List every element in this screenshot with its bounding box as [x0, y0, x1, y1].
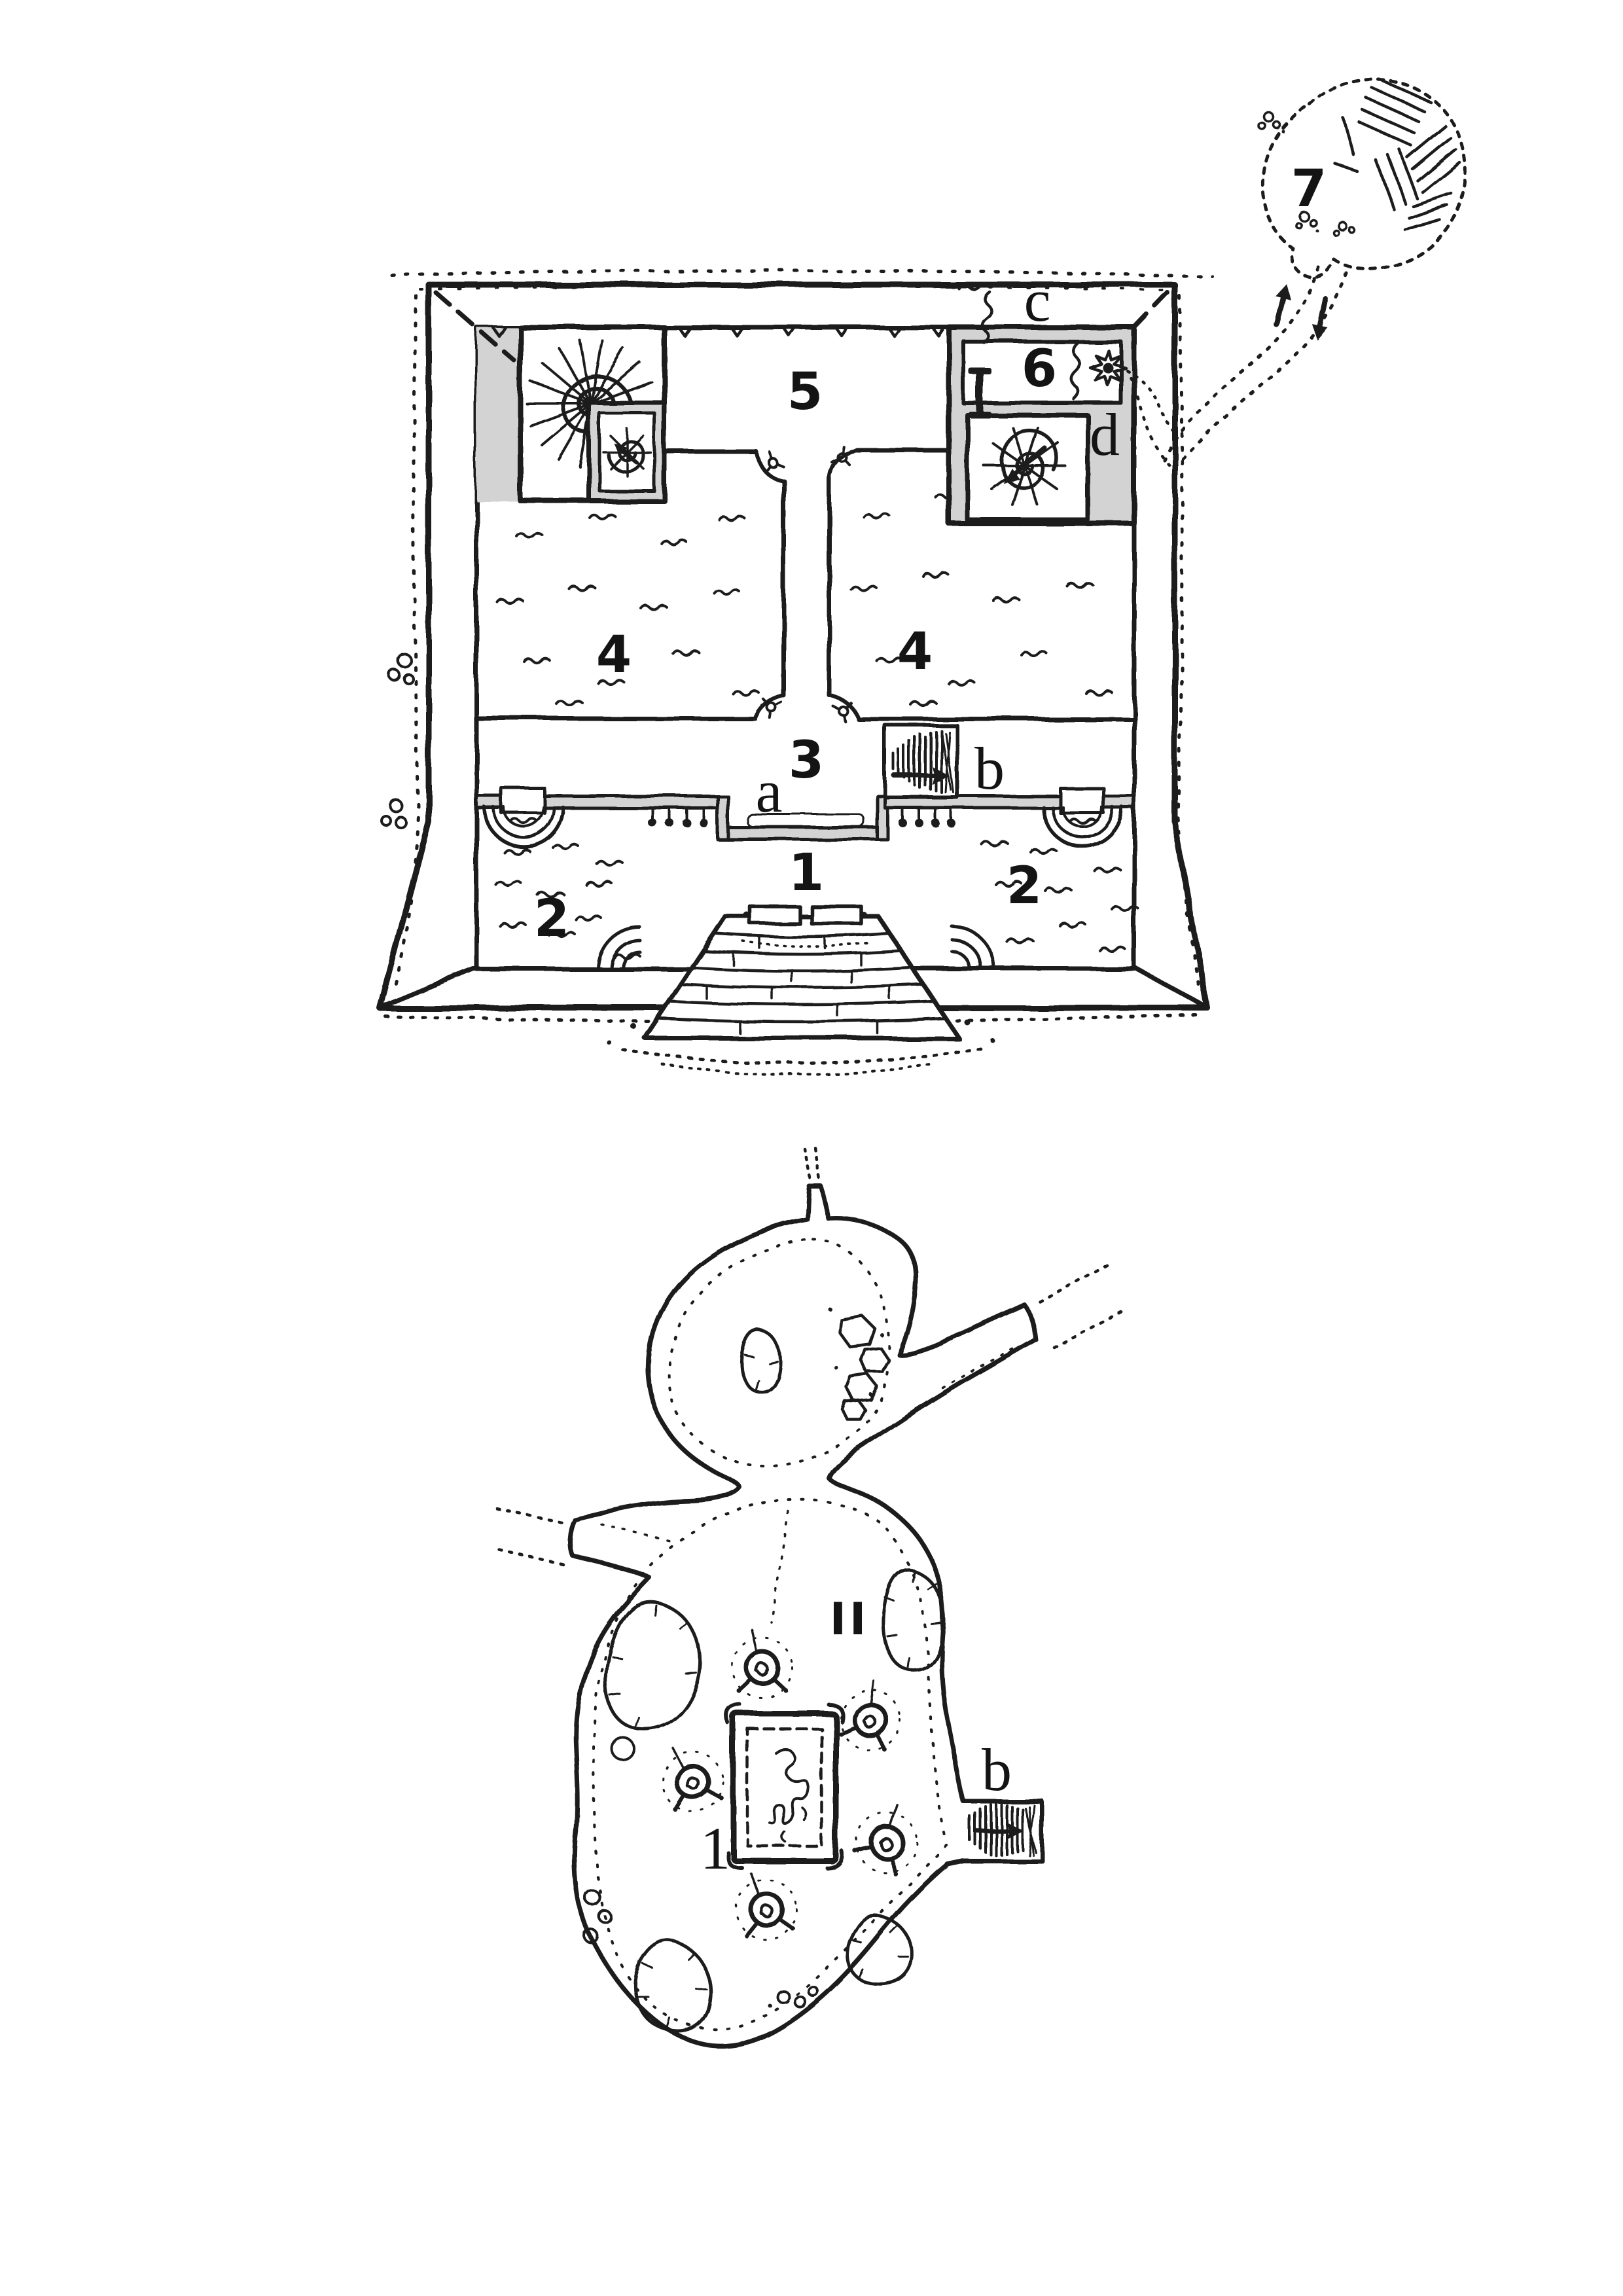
door-leaf — [750, 906, 800, 924]
corner-pool-right — [952, 927, 994, 969]
room-4-right-label: 4 — [897, 622, 933, 681]
spiral-staircase-northwest — [520, 327, 664, 501]
door-leaf — [811, 906, 861, 924]
ceremonial-dais — [726, 1704, 842, 1868]
room-5-label: 5 — [787, 363, 823, 422]
feature-b-label: b — [974, 735, 1005, 802]
level-ii-label: II — [830, 1594, 870, 1645]
temple-labels: 1 2 2 3 4 4 5 6 7 a b c d — [534, 160, 1327, 948]
fountain-spout — [501, 788, 544, 813]
cave-feature-b-label: b — [982, 1736, 1012, 1803]
stairs-b — [885, 725, 957, 797]
deadfall-hatching — [1335, 80, 1459, 230]
brazier-icon — [658, 1738, 724, 1813]
cavern-level-map — [492, 1148, 1126, 2046]
cave-7-label: 7 — [1291, 160, 1327, 219]
room-2-right-label: 2 — [1007, 857, 1042, 916]
cave-feature-1-label: 1 — [700, 1815, 730, 1882]
edge-stipple — [594, 1240, 1018, 2029]
cave-7 — [1258, 79, 1465, 278]
room-2-left-label: 2 — [534, 889, 569, 948]
room-3-label: 3 — [789, 731, 824, 790]
thick-wall-corner — [476, 327, 520, 501]
rock-ticks — [610, 1355, 941, 2028]
boulder-cluster-upper — [828, 1307, 889, 1419]
boulders-west — [382, 653, 412, 828]
dungeon-map-page: 1 2 2 3 4 4 5 6 7 a b c d — [0, 0, 1623, 2296]
fountain-spout — [1060, 788, 1103, 813]
brazier-icon — [838, 1676, 908, 1753]
corner-pool-left — [597, 927, 639, 969]
feature-a-label: a — [756, 758, 783, 825]
trail-arrow-up-icon — [1268, 281, 1294, 326]
room-6-label: 6 — [1022, 340, 1057, 399]
entrance-steps — [607, 906, 994, 1075]
door-pivot-icon — [760, 699, 781, 719]
feature-c-label: c — [1024, 267, 1051, 334]
cave-stairs-b — [970, 1804, 1035, 1856]
brazier-icon — [736, 1869, 796, 1939]
map-canvas: 1 2 2 3 4 4 5 6 7 a b c d — [0, 0, 1623, 2296]
peg-rows — [650, 809, 954, 826]
feature-d-label: d — [1090, 401, 1120, 468]
room-1-label: 1 — [789, 844, 824, 903]
room-4-left-label: 4 — [596, 626, 632, 685]
cavern-outline — [570, 1186, 1042, 2046]
brazier-icon — [737, 1630, 789, 1693]
